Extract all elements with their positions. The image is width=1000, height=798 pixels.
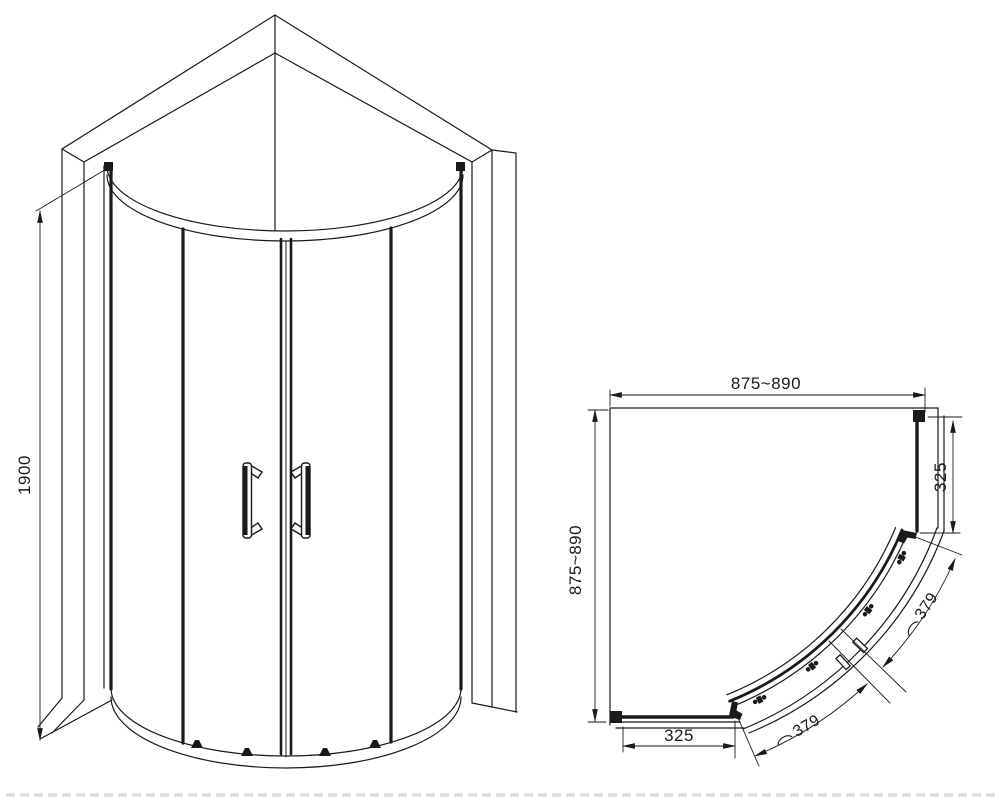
- height-dimension-label: 1900: [15, 455, 34, 495]
- door-handle-left: [243, 463, 262, 538]
- plan-view: 379 379 875~890 875~890 325: [566, 374, 962, 766]
- door-arc-bottom-label: 379: [790, 712, 823, 741]
- plan-width-label: 875~890: [731, 374, 801, 393]
- plan-depth-label: 875~890: [566, 525, 585, 595]
- plan-bottom-325-label: 325: [664, 726, 694, 745]
- height-dimension: [36, 168, 108, 740]
- plan-depth-dimension: [588, 410, 608, 722]
- plan-door-handles: [836, 638, 867, 669]
- door-arc-right-label-group: 379: [901, 590, 942, 639]
- corner-profile-bottom-left: [610, 711, 622, 723]
- plan-right-325-label: 325: [931, 462, 950, 492]
- glass-panels: [104, 166, 461, 757]
- top-rail: [104, 162, 465, 241]
- plan-door-rollers: [752, 550, 909, 707]
- technical-drawing-canvas: 1900: [0, 0, 1000, 798]
- plan-fixed-panels: [610, 410, 925, 723]
- drawing-svg: 1900: [0, 0, 1000, 798]
- door-handle-right: [291, 463, 310, 538]
- plan-sliding-doors: [727, 528, 908, 707]
- plan-arc-dimensions: [755, 559, 955, 756]
- front-elevation-view: 1900: [15, 15, 517, 768]
- corner-profile-top-right: [913, 410, 925, 422]
